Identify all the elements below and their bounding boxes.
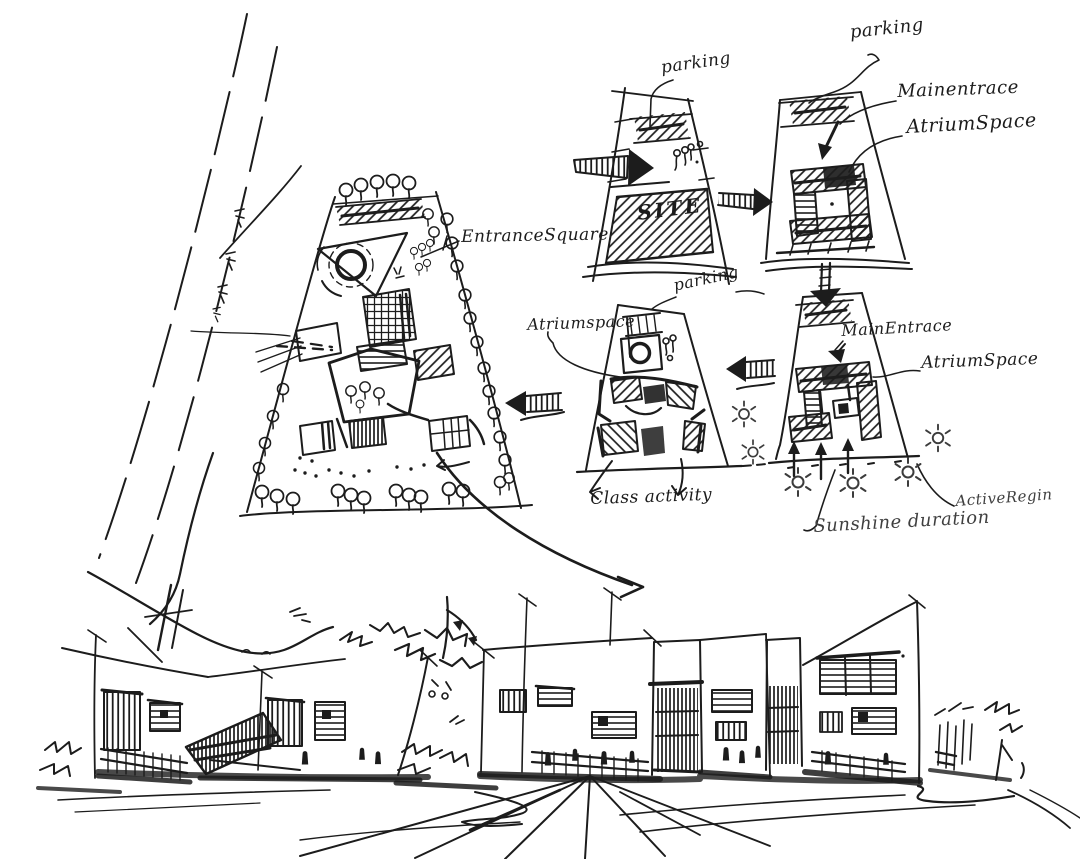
curved-arrow-to-perspective	[437, 453, 643, 597]
entrance-square-label: EntranceSquare	[461, 226, 609, 246]
perspective-sketch	[38, 572, 1080, 859]
bushes-right	[918, 702, 1024, 802]
massing-diagram-sketch	[761, 54, 912, 271]
main-entrance-label-massing-diagram: Mainentrace	[897, 79, 1019, 101]
class-activity-label: Class activity	[590, 487, 712, 508]
arrow-left-icon	[505, 391, 564, 420]
building-right	[803, 595, 925, 783]
building-left-2	[186, 650, 437, 780]
people-glyphs	[663, 335, 676, 361]
sun-symbols	[733, 401, 950, 497]
arrow-left-icon	[726, 356, 775, 389]
building-left-1	[62, 630, 208, 782]
footpath-dots	[293, 456, 425, 477]
ground-lines	[58, 772, 1080, 859]
people-glyphs	[674, 142, 703, 171]
arrow-right-icon	[718, 188, 773, 216]
atrium-space-label-sunlight-diagram: AtriumSpace	[921, 351, 1039, 372]
site-diagram-sketch	[574, 80, 736, 284]
sketch-canvas: parking SITE parking Mainentrace AtriumS…	[0, 0, 1080, 859]
road-sketch	[99, 14, 332, 583]
atrium-glass-2	[766, 638, 802, 770]
atrium-space-label-courtyard-diagram: Atriumspace	[527, 313, 635, 333]
atrium-glass-1	[650, 640, 702, 775]
